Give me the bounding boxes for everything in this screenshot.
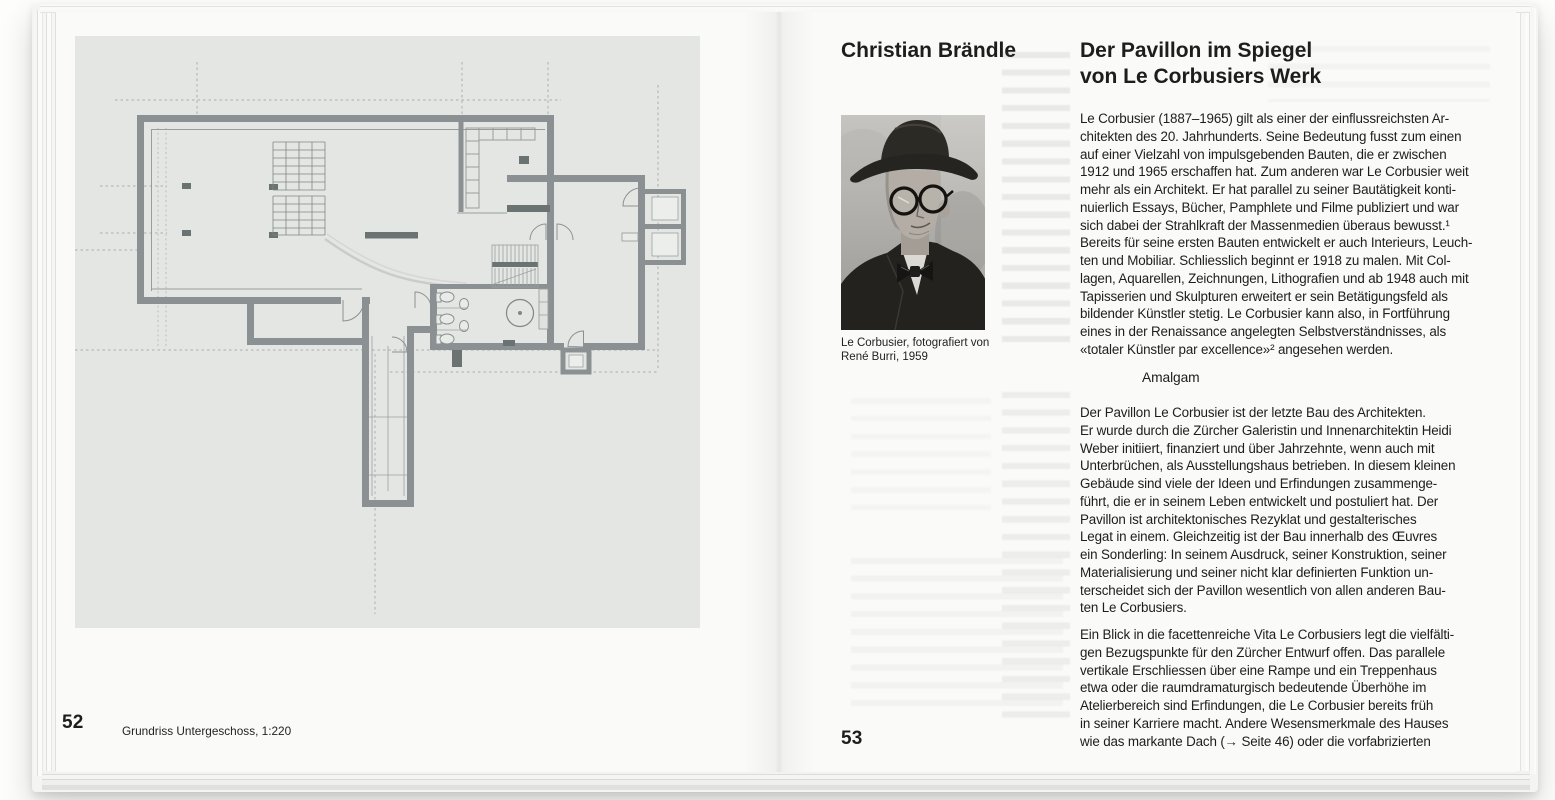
paragraph-1: Le Corbusier (1887–1965) gilt als einer … xyxy=(1080,110,1472,359)
page-number-right: 53 xyxy=(841,728,863,750)
bleed-through-text xyxy=(851,558,1063,708)
author-name: Christian Brändle xyxy=(841,38,1016,64)
plan-bathroom xyxy=(436,292,469,344)
bleed-through-text xyxy=(851,398,991,518)
photo-caption: Le Corbusier, fotografiert von René Burr… xyxy=(841,336,989,364)
bleed-through-text xyxy=(1268,46,1490,102)
le-corbusier-photo xyxy=(841,115,985,330)
plan-table-room xyxy=(507,233,639,329)
bleed-through-text xyxy=(1002,52,1070,352)
plan-caption: Grundriss Untergeschoss, 1:220 xyxy=(122,724,291,738)
paragraph-3: Ein Blick in die facettenreiche Vita Le … xyxy=(1080,626,1454,750)
book-gutter xyxy=(743,12,815,772)
portrait-illustration xyxy=(841,115,985,330)
floor-plan-drawing xyxy=(75,36,700,628)
subheading-amalgam: Amalgam xyxy=(1142,370,1200,385)
plan-kitchen xyxy=(457,128,535,213)
plan-walls xyxy=(137,115,645,507)
plan-shelving-grid xyxy=(273,142,325,235)
floor-plan-panel xyxy=(75,36,700,628)
page-number-left: 52 xyxy=(62,712,84,734)
page-stack-edge-right xyxy=(1516,8,1536,774)
page-stack-edge-bottom xyxy=(42,771,1530,790)
page-stack-edge-left xyxy=(34,10,56,776)
book-spread-photo: 52 Grundriss Untergeschoss, 1:220 Christ… xyxy=(0,0,1555,800)
paragraph-2: Der Pavillon Le Corbusier ist der letzte… xyxy=(1080,404,1455,617)
